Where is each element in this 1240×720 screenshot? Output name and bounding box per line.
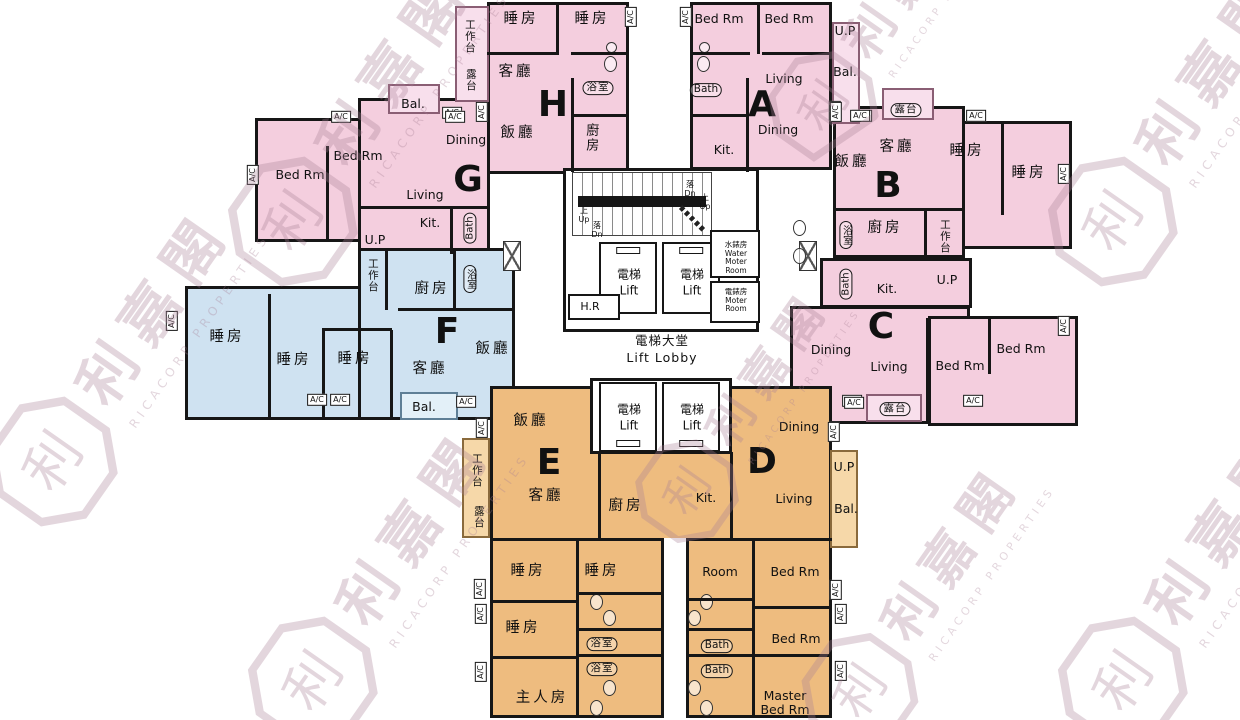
ricacorp-logo-icon: 利 (229, 598, 396, 720)
ac-label: A/C (1058, 316, 1070, 336)
room-label: 上 Up (579, 207, 590, 225)
room-label: Dining (446, 133, 486, 147)
unit-letter-d: D (747, 442, 777, 482)
lift-door (616, 247, 640, 254)
ac-label: A/C (445, 111, 465, 123)
shaft (503, 241, 521, 271)
room-label: 露台 (880, 402, 911, 416)
room-label: 電梯 Lift (680, 402, 704, 433)
room-label: Living (775, 492, 812, 506)
ac-label: A/C (680, 7, 692, 27)
room-label: 客廳 (880, 139, 915, 155)
room-label: Kit. (696, 491, 717, 505)
unit-letter-h: H (538, 85, 568, 125)
room-label: 客廳 (499, 64, 534, 80)
unit-e-d-kitchen-link (660, 452, 690, 538)
ac-label: A/C (330, 394, 350, 406)
svg-text:利: 利 (12, 421, 96, 503)
room-label: U.P (365, 233, 386, 247)
room-label: U.P (834, 460, 855, 474)
room-label: Bed Rm (770, 565, 819, 579)
room-label: 浴室 (839, 221, 852, 249)
ac-label: A/C (830, 102, 842, 122)
ac-label: A/C (850, 110, 870, 122)
room-label: 上 Up (700, 194, 711, 212)
room-label: 浴室 (463, 265, 476, 293)
room-label: Bed Rm (771, 632, 820, 646)
room-label: 工作台 (366, 258, 378, 293)
room-label: 飯廳 (835, 154, 870, 170)
unit-letter-c: C (868, 307, 894, 347)
room-label: 浴室 (583, 81, 614, 95)
room-label: 浴室 (587, 662, 618, 676)
room-label: 電梯 Lift (617, 402, 641, 433)
ac-label: A/C (166, 311, 178, 331)
room-label: 睡房 (950, 143, 985, 159)
svg-text:利: 利 (1072, 181, 1156, 263)
room-label: Kit. (420, 216, 441, 230)
room-label: 露台 (464, 69, 476, 92)
room-label: 睡房 (575, 11, 610, 27)
room-label: Bed Rm (996, 342, 1045, 356)
room-label: 落 Dn (591, 222, 602, 240)
room-label: 浴室 (587, 637, 618, 651)
ac-label: A/C (828, 422, 840, 442)
room-label: Bed Rm (764, 12, 813, 26)
room-label: 客廳 (413, 361, 448, 377)
room-label: 電梯大堂 Lift Lobby (626, 333, 697, 367)
room-label: Living (870, 360, 907, 374)
unit-letter-a: A (748, 85, 776, 125)
ricacorp-logo-icon: 利 (0, 378, 136, 545)
ricacorp-logo-icon: 利 (1039, 598, 1206, 720)
room-label: Bath (690, 83, 722, 97)
room-label: Bath (839, 268, 852, 299)
room-label: 工作台 (463, 19, 475, 54)
room-label: Living (406, 188, 443, 202)
room-label: Dining (779, 420, 819, 434)
ac-label: A/C (475, 662, 487, 682)
room-label: 飯廳 (501, 125, 536, 141)
room-label: Bal. (412, 400, 436, 414)
room-label: H.R (580, 301, 599, 313)
ac-label: A/C (963, 395, 983, 407)
room-label: 電梯 Lift (680, 267, 704, 298)
ac-label: A/C (835, 661, 847, 681)
room-label: Room (702, 565, 738, 579)
room-label: 工作台 (470, 453, 482, 488)
room-label: Bed Rm (935, 359, 984, 373)
lift-door (616, 440, 640, 447)
ac-label: A/C (247, 165, 259, 185)
floor-plan: 睡房睡房客廳H飯廳廚房浴室工作台露台A/CA/CA/CA/CBed RmBed … (0, 0, 1240, 720)
ac-label: A/C (835, 604, 847, 624)
room-label: U.P (835, 24, 856, 38)
room-label: 客廳 (529, 488, 564, 504)
room-label: 電梯 Lift (617, 267, 641, 298)
room-label: Kit. (714, 143, 735, 157)
room-label: 睡房 (210, 329, 245, 345)
room-label: 睡房 (277, 352, 312, 368)
room-label: 睡房 (585, 563, 620, 579)
room-label: Bed Rm (694, 12, 743, 26)
room-label: 睡房 (506, 620, 541, 636)
room-label: 工作台 (938, 219, 950, 254)
room-label: 電錶房 Moter Room (725, 288, 748, 314)
unit-letter-f: F (435, 312, 460, 352)
room-label: 廚房 (415, 281, 450, 297)
ac-label: A/C (456, 396, 476, 408)
room-label: 睡房 (511, 563, 546, 579)
ac-label: A/C (476, 102, 488, 122)
room-label: Bal. (401, 97, 425, 111)
room-label: Dining (811, 343, 851, 357)
room-label: 水錶房 Water Moter Room (725, 241, 748, 276)
unit-letter-e: E (537, 443, 562, 483)
ac-label: A/C (625, 7, 637, 27)
ac-label: A/C (1058, 164, 1070, 184)
room-label: Dining (758, 123, 798, 137)
svg-text:利: 利 (272, 641, 356, 720)
ac-label: A/C (830, 580, 842, 600)
room-label: Bath (701, 664, 733, 678)
room-label: 飯廳 (514, 413, 549, 429)
ac-label: A/C (844, 397, 864, 409)
lift-door (679, 247, 703, 254)
ac-label: A/C (475, 604, 487, 624)
room-label: 飯廳 (476, 341, 511, 357)
unit-letter-g: G (453, 160, 483, 200)
room-label: Bed Rm (275, 168, 324, 182)
ricacorp-watermark: 利 利嘉閣RICACORP PROPERTIES (1039, 395, 1240, 720)
svg-text:利: 利 (822, 655, 898, 720)
lift-door (679, 440, 703, 447)
ac-label: A/C (474, 579, 486, 599)
room-label: 露台 (891, 103, 922, 117)
room-label: Bath (463, 212, 476, 243)
room-label: Bal. (834, 502, 858, 516)
room-label: Kit. (877, 282, 898, 296)
room-label: 露台 (472, 506, 484, 529)
room-label: U.P (937, 273, 958, 287)
room-label: Bed Rm (333, 149, 382, 163)
ac-label: A/C (966, 110, 986, 122)
room-label: 睡房 (504, 11, 539, 27)
unit-letter-b: B (874, 166, 901, 206)
room-label: 主人房 (516, 690, 569, 706)
ac-label: A/C (307, 394, 327, 406)
svg-text:利: 利 (1082, 641, 1166, 720)
room-label: 睡房 (338, 351, 373, 367)
room-label: 廚房 (609, 498, 644, 514)
room-label: 睡房 (1012, 165, 1047, 181)
room-label: 落 Dn (684, 181, 695, 199)
room-label: 廚房 (583, 123, 598, 153)
ac-label: A/C (476, 418, 488, 438)
room-label: Bath (701, 639, 733, 653)
room-label: Bal. (833, 65, 857, 79)
room-label: 廚房 (868, 220, 903, 236)
room-label: Master Bed Rm (760, 689, 809, 717)
ac-label: A/C (331, 111, 351, 123)
